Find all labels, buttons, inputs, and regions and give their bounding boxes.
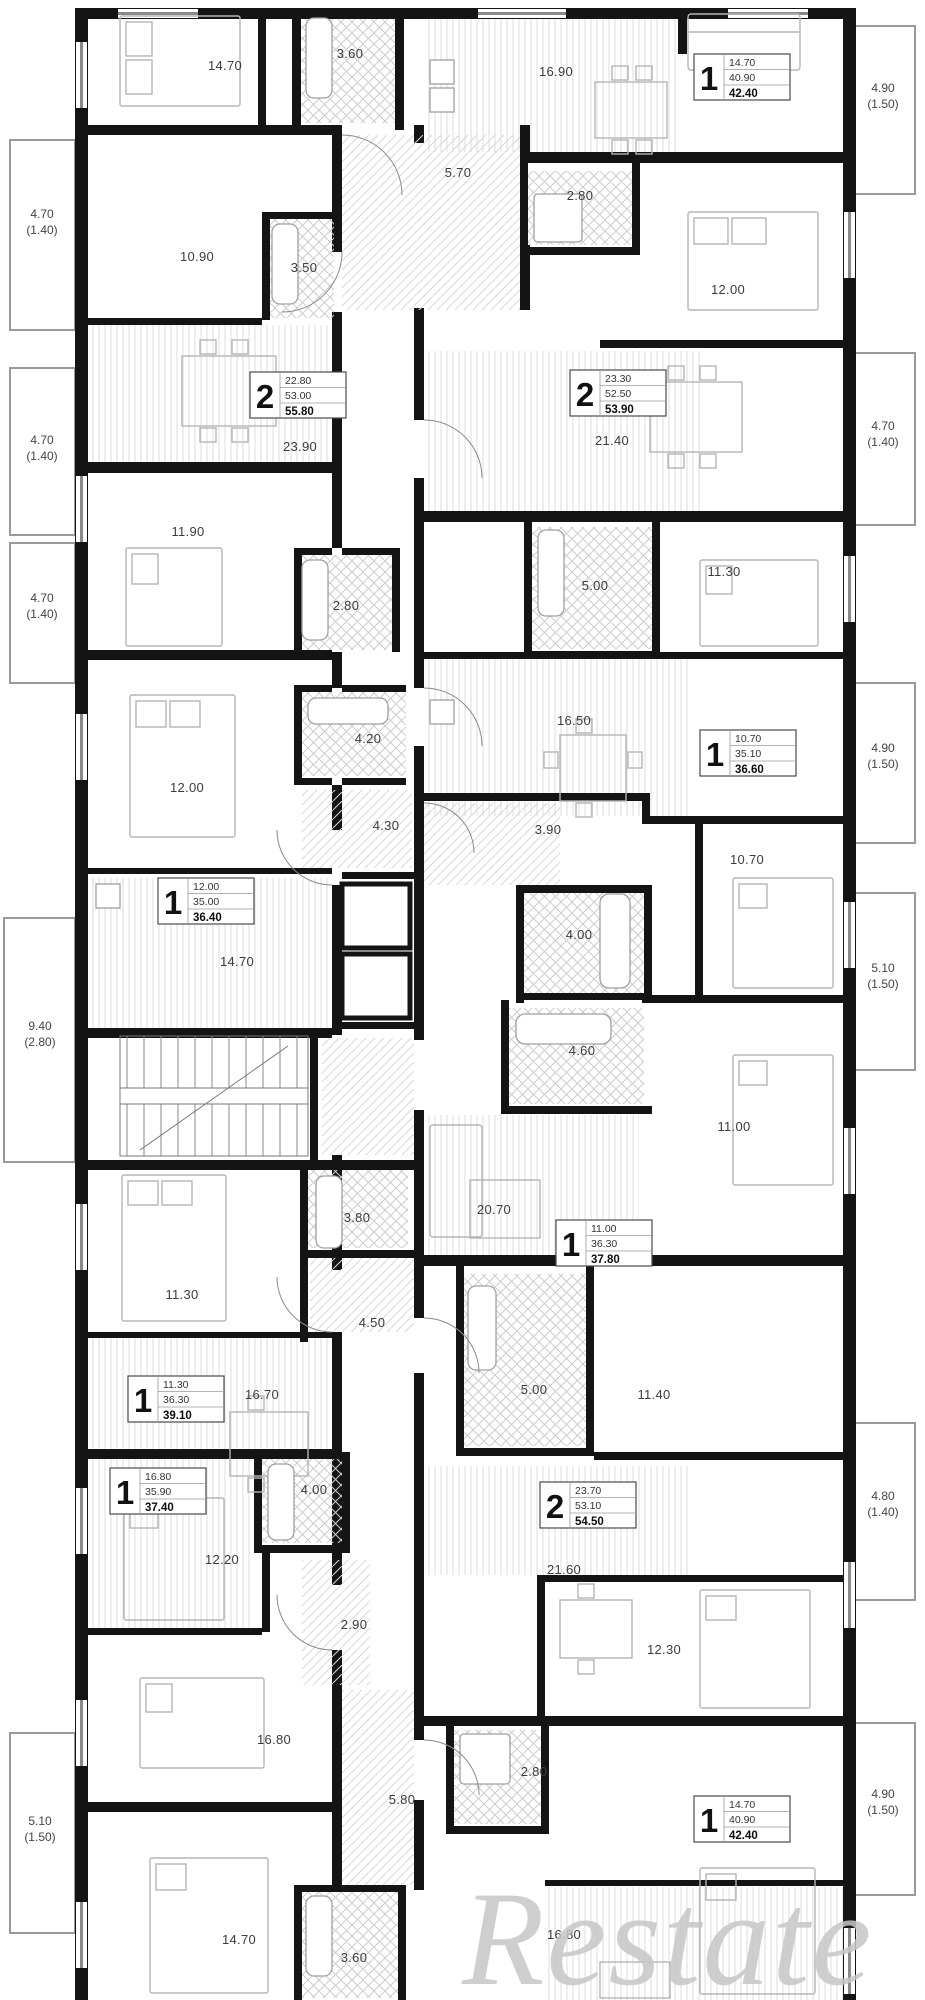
apartment-area: 35.10	[735, 748, 761, 760]
balcony-area: 5.10	[28, 1814, 52, 1828]
apartment-area: 40.90	[729, 72, 755, 84]
apartment-total-area: 42.40	[729, 1830, 758, 1842]
room-area-label: 2.90	[341, 1617, 368, 1632]
room-area-label: 16.70	[245, 1387, 279, 1402]
apartment-total-area: 36.60	[735, 764, 764, 776]
balcony-glazed-area: (1.50)	[867, 97, 898, 111]
balcony-glazed-area: (1.50)	[24, 1830, 55, 1844]
room-area-label: 20.70	[477, 1202, 511, 1217]
balcony-glazed-area: (1.40)	[26, 607, 57, 621]
stove	[430, 88, 454, 112]
apartment-area: 36.30	[163, 1394, 189, 1406]
balcony-area: 4.70	[30, 433, 54, 447]
apartment-rooms-count: 1	[164, 884, 182, 921]
apartment-total-area: 42.40	[729, 88, 758, 100]
room-area-label: 3.80	[344, 1210, 371, 1225]
apartment-living-area: 11.30	[163, 1379, 189, 1391]
room-area-label: 21.60	[547, 1562, 581, 1577]
room-area-label: 11.90	[171, 524, 204, 539]
apartment-living-area: 12.00	[193, 881, 219, 893]
room-area-label: 3.60	[337, 46, 364, 61]
apartment-total-area: 37.80	[591, 1254, 620, 1266]
room-area-label: 4.50	[359, 1315, 386, 1330]
balcony-glazed-area: (1.50)	[867, 977, 898, 991]
apartment-total-area: 36.40	[193, 912, 222, 924]
room-area-label: 2.80	[521, 1764, 548, 1779]
room-area-label: 16.50	[557, 713, 591, 728]
room-area-label: 5.70	[445, 165, 472, 180]
room-area-label: 21.40	[595, 433, 629, 448]
balcony-area: 4.70	[30, 207, 54, 221]
room-area-label: 11.30	[165, 1287, 198, 1302]
apartment-rooms-count: 1	[700, 60, 718, 97]
apartment-area: 35.90	[145, 1486, 171, 1498]
sink	[430, 60, 454, 84]
apartment-living-area: 22.80	[285, 375, 311, 387]
room-area-label: 10.90	[180, 249, 214, 264]
stairs	[120, 1036, 308, 1156]
balcony-area: 4.80	[871, 1489, 895, 1503]
room-area-label: 12.30	[647, 1642, 681, 1657]
balcony-glazed-area: (1.50)	[867, 757, 898, 771]
room-area-label: 10.70	[730, 852, 764, 867]
room-area-label: 11.40	[637, 1387, 670, 1402]
room-area-label: 5.00	[521, 1382, 548, 1397]
apartment-rooms-count: 1	[562, 1226, 580, 1263]
apartment-area: 53.10	[575, 1500, 601, 1512]
balcony-area: 4.70	[871, 419, 895, 433]
apartment-area: 52.50	[605, 388, 631, 400]
balcony-glazed-area: (2.80)	[24, 1035, 55, 1049]
room-area-label: 4.00	[566, 927, 593, 942]
room-area-label: 11.00	[717, 1119, 750, 1134]
room-area-label: 14.70	[222, 1932, 256, 1947]
sink	[430, 700, 454, 724]
apartment-living-area: 14.70	[729, 57, 755, 69]
room-area-label: 4.60	[569, 1043, 596, 1058]
room-area-label: 23.90	[283, 439, 317, 454]
bathtub	[538, 530, 564, 616]
bathtub	[516, 1014, 611, 1044]
balcony-area: 4.90	[871, 81, 895, 95]
apartment-area: 36.30	[591, 1238, 617, 1250]
balcony-area: 4.90	[871, 1787, 895, 1801]
room-area-label: 14.70	[220, 954, 254, 969]
floor-plan: 14.70 3.60 16.90 5.70 10.90 3.50 2.80 12…	[0, 0, 925, 2000]
apartment-info-box: 1 10.70 35.10 36.60	[700, 730, 796, 776]
balcony-glazed-area: (1.40)	[26, 223, 57, 237]
balcony-glazed-area: (1.40)	[26, 449, 57, 463]
room-area-label: 2.80	[567, 188, 594, 203]
balcony-glazed-area: (1.40)	[867, 435, 898, 449]
apartment-rooms-count: 1	[700, 1802, 718, 1839]
bathtub	[306, 1896, 332, 1976]
room-area-label: 11.30	[707, 564, 740, 579]
apartment-area: 35.00	[193, 896, 219, 908]
bathtub	[268, 1464, 294, 1540]
apartment-total-area: 55.80	[285, 406, 314, 418]
apartment-rooms-count: 1	[134, 1382, 152, 1419]
bathtub	[308, 698, 388, 724]
apartment-living-area: 23.30	[605, 373, 631, 385]
bathtub	[600, 894, 630, 988]
room-area-label: 16.80	[257, 1732, 291, 1747]
apartment-rooms-count: 2	[576, 376, 594, 413]
apartment-rooms-count: 2	[256, 378, 274, 415]
balcony-area: 4.90	[871, 741, 895, 755]
balcony-glazed-area: (1.50)	[867, 1803, 898, 1817]
apartment-rooms-count: 2	[546, 1488, 564, 1525]
room-area-label: 3.90	[535, 822, 562, 837]
room-area-label: 16.90	[539, 64, 573, 79]
bathtub	[468, 1286, 496, 1370]
apartment-rooms-count: 1	[116, 1474, 134, 1511]
room-area-label: 5.00	[582, 578, 609, 593]
apartment-living-area: 11.00	[591, 1223, 617, 1235]
watermark: Restate	[461, 1865, 873, 2000]
room-area-label: 4.00	[301, 1482, 328, 1497]
apartment-total-area: 54.50	[575, 1516, 604, 1528]
balcony-glazed-area: (1.40)	[867, 1505, 898, 1519]
apartment-area: 53.00	[285, 390, 311, 402]
apartment-info-box: 2 22.80 53.00 55.80	[250, 372, 346, 418]
apartment-info-box: 1 12.00 35.00 36.40	[158, 878, 254, 924]
room-area-label: 12.20	[205, 1552, 239, 1567]
room-area-label: 3.50	[291, 260, 318, 275]
room-area-label: 12.00	[170, 780, 204, 795]
bathtub	[306, 18, 332, 98]
apartment-info-box: 1 11.00 36.30 37.80	[556, 1220, 652, 1266]
stove	[96, 884, 120, 908]
apartment-total-area: 37.40	[145, 1502, 174, 1514]
room-area-label: 3.60	[341, 1950, 368, 1965]
apartment-living-area: 23.70	[575, 1485, 601, 1497]
bathtub	[302, 560, 328, 640]
balcony-area: 9.40	[28, 1019, 52, 1033]
room-area-label: 14.70	[208, 58, 242, 73]
room-area-label: 5.80	[389, 1792, 416, 1807]
apartment-total-area: 39.10	[163, 1410, 192, 1422]
apartment-info-box: 2 23.30 52.50 53.90	[570, 370, 666, 416]
balcony-area: 5.10	[871, 961, 895, 975]
apartment-area: 40.90	[729, 1814, 755, 1826]
apartment-living-area: 16.80	[145, 1471, 171, 1483]
apartment-living-area: 14.70	[729, 1799, 755, 1811]
apartment-info-box: 1 11.30 36.30 39.10	[128, 1376, 224, 1422]
apartment-rooms-count: 1	[706, 736, 724, 773]
apartment-info-box: 2 23.70 53.10 54.50	[540, 1482, 636, 1528]
apartment-info-box: 1 14.70 40.90 42.40	[694, 1796, 790, 1842]
apartment-total-area: 53.90	[605, 404, 634, 416]
apartment-info-box: 1 14.70 40.90 42.40	[694, 54, 790, 100]
apartment-info-box: 1 16.80 35.90 37.40	[110, 1468, 206, 1514]
room-area-label: 4.20	[355, 731, 382, 746]
shower	[460, 1734, 510, 1784]
room-area-label: 12.00	[711, 282, 745, 297]
floor-plan-svg: 14.70 3.60 16.90 5.70 10.90 3.50 2.80 12…	[0, 0, 925, 2000]
apartment-living-area: 10.70	[735, 733, 761, 745]
room-area-label: 2.80	[333, 598, 360, 613]
balcony-area: 4.70	[30, 591, 54, 605]
room-area-label: 4.30	[373, 818, 400, 833]
bathtub	[316, 1176, 342, 1248]
